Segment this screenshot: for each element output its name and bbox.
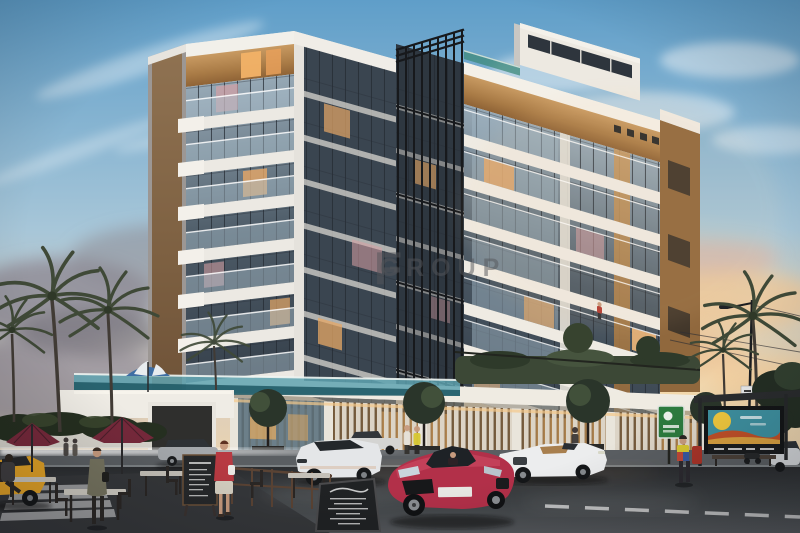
architectural-render: F GROUP: [0, 0, 800, 533]
vignette: [0, 0, 800, 533]
scene-canvas: F GROUP: [0, 0, 800, 533]
